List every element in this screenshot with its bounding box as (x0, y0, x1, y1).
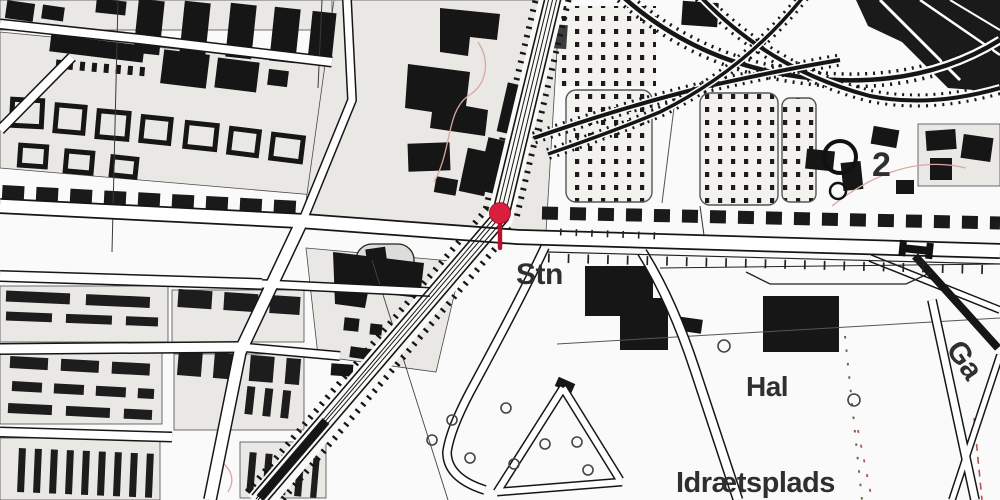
spot-number-label: 2 (872, 146, 890, 184)
sports-field-label: Idrætsplads (676, 467, 835, 499)
hall-label: Hal (746, 371, 788, 402)
map-canvas[interactable]: Stn Hal Idrætsplads 2 Ga (0, 0, 1000, 500)
hall-building (763, 296, 839, 352)
station-label: Stn (516, 258, 563, 291)
pin-head (490, 203, 511, 224)
